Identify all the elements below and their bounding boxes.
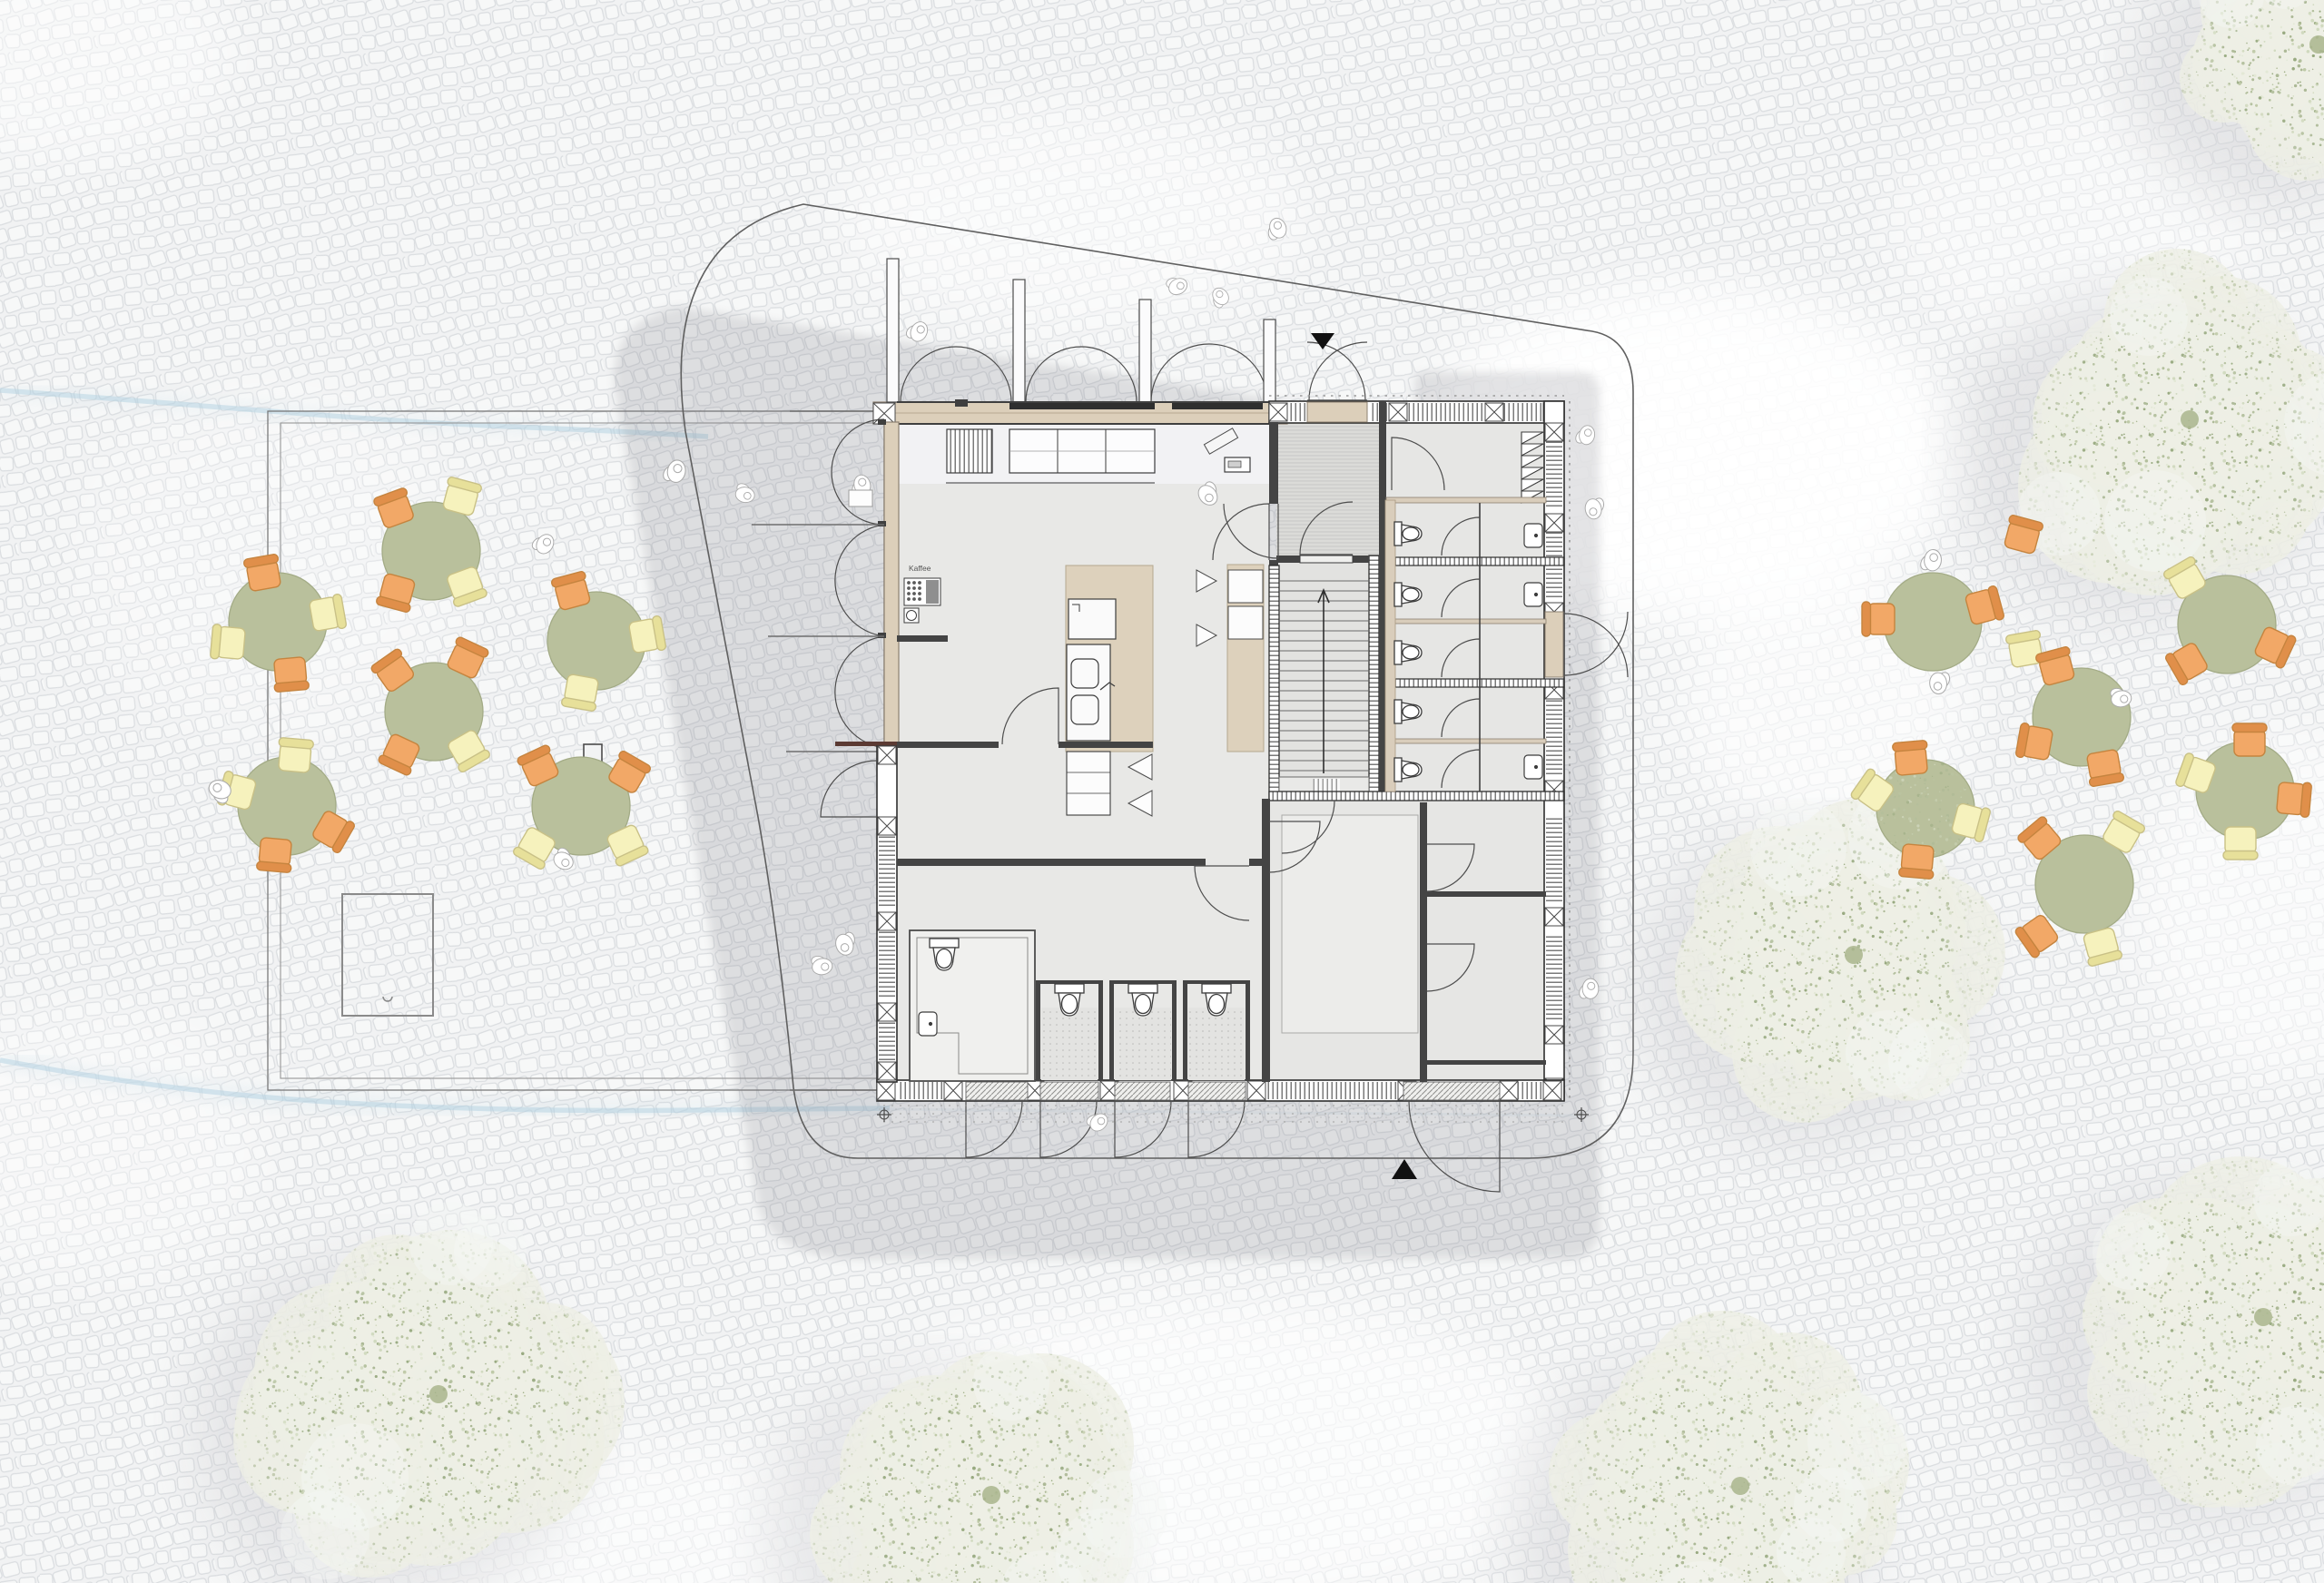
- svg-text:Kaffee: Kaffee: [909, 564, 931, 573]
